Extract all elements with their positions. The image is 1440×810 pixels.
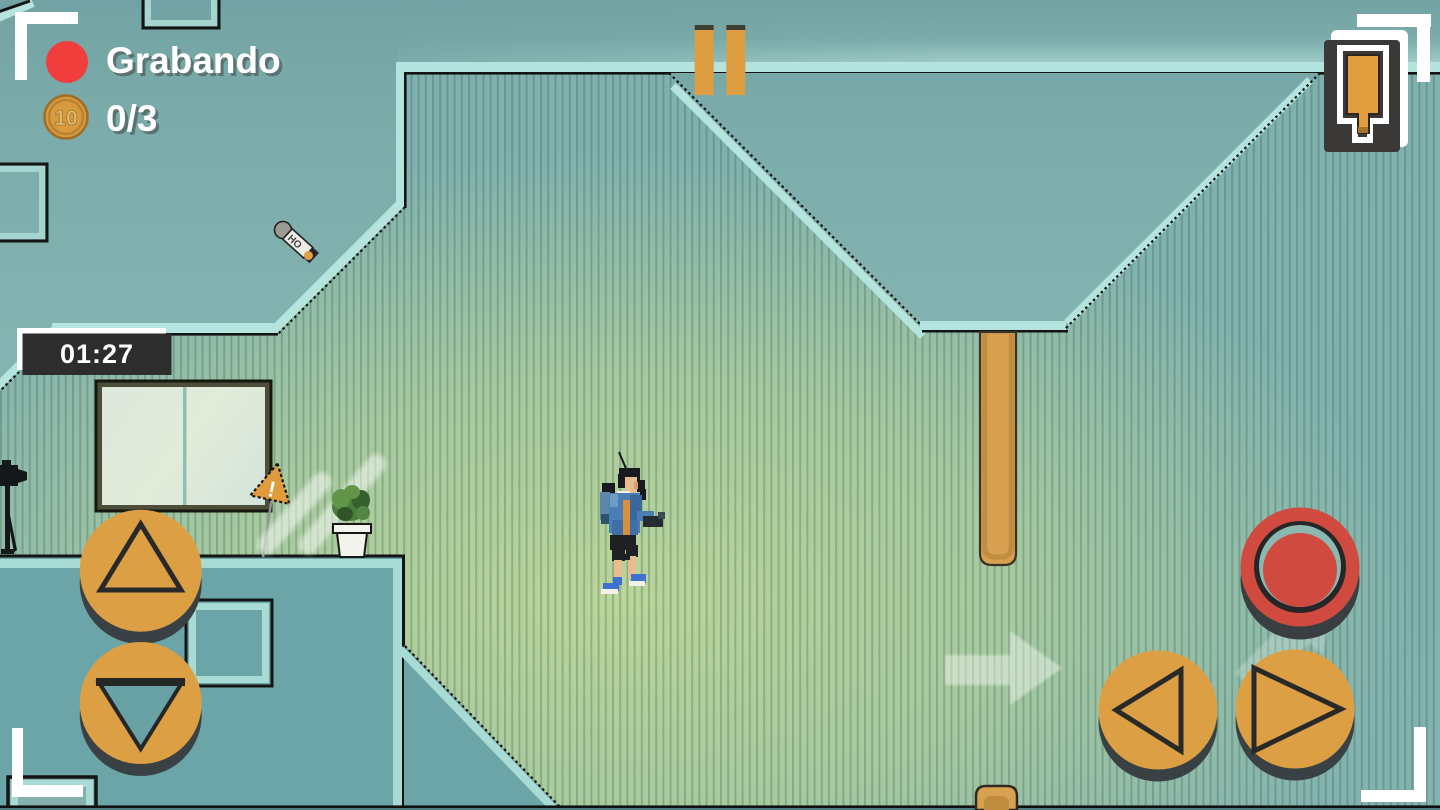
svg-text:Grabando: Grabando [106, 40, 281, 81]
svg-text:01:27: 01:27 [60, 339, 134, 369]
svg-text:0/3: 0/3 [106, 98, 157, 139]
svg-text:10: 10 [54, 107, 77, 130]
